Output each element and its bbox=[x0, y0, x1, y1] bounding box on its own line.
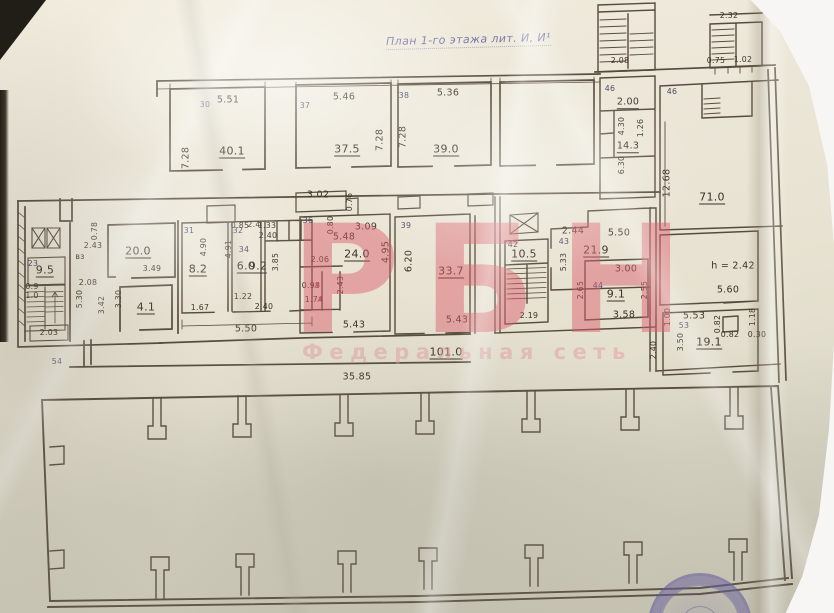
dimension-label: 3.30 bbox=[115, 290, 123, 309]
dimension-label: 7.28 bbox=[181, 147, 191, 169]
dimension-label: 2.00 bbox=[617, 97, 639, 109]
dimension-label: 54 bbox=[52, 358, 63, 366]
dimension-label: 14.3 bbox=[617, 141, 639, 153]
watermark-text: РБН bbox=[290, 206, 706, 356]
dimension-label: 2.03 bbox=[40, 329, 59, 337]
dimension-label: 4.91 bbox=[225, 240, 233, 259]
dimension-label: 39.0 bbox=[433, 144, 459, 157]
round-stamp-inner-ring bbox=[677, 602, 722, 613]
dimension-label: 5.46 bbox=[333, 92, 355, 102]
dimension-label: 2.40 bbox=[259, 232, 278, 240]
dimension-label: 20.0 bbox=[125, 246, 151, 259]
dimension-label: h = 2.42 bbox=[711, 261, 755, 271]
dimension-label: 9.2 bbox=[249, 261, 267, 274]
dimension-label: вз bbox=[75, 253, 84, 261]
dimension-label: 5.51 bbox=[217, 95, 239, 105]
dimension-label: 7.28 bbox=[398, 126, 408, 148]
dimension-label: 1.26 bbox=[637, 119, 645, 138]
dimension-label: 1.22 bbox=[234, 293, 253, 301]
dimension-label: 0.78 bbox=[91, 222, 99, 241]
dimension-label: 40.1 bbox=[219, 146, 245, 159]
dimension-label: 7.28 bbox=[375, 129, 385, 151]
dimension-label: 8.2 bbox=[189, 264, 207, 277]
dimension-label: 2.08 bbox=[79, 279, 98, 287]
photo-dark-edge bbox=[0, 90, 9, 342]
dimension-label: 31 bbox=[184, 227, 195, 235]
dimension-label: 0.30 bbox=[748, 331, 767, 339]
dimension-label: 37.5 bbox=[334, 144, 360, 157]
dimension-label: 0.82 bbox=[721, 331, 740, 339]
dimension-label: 5.36 bbox=[437, 88, 459, 98]
dimension-label: 2.08 bbox=[611, 57, 630, 65]
dimension-label: 46 bbox=[605, 85, 616, 93]
dimension-label: 1.67 bbox=[191, 304, 210, 312]
dimension-label: 5.60 bbox=[717, 285, 739, 295]
dimension-label: 34 bbox=[239, 246, 250, 254]
dimension-label: 30 bbox=[200, 101, 211, 109]
dimension-label: 3.49 bbox=[143, 265, 162, 273]
dimension-label: 0.9 bbox=[25, 283, 38, 291]
dimension-label: 4.30 bbox=[618, 117, 626, 136]
dimension-label: 9.5 bbox=[36, 265, 54, 278]
dimension-label: 1.18 bbox=[749, 308, 757, 327]
dimension-label: 6.30 bbox=[618, 156, 626, 175]
dimension-label: 1.33 bbox=[258, 222, 277, 230]
dimension-label: 46 bbox=[667, 88, 678, 96]
dimension-label: 5.50 bbox=[235, 324, 257, 334]
dimension-label: 3.85 bbox=[272, 253, 280, 272]
watermark-subtitle: Федеральная сеть bbox=[302, 340, 632, 364]
dimension-label: 4.90 bbox=[200, 238, 208, 257]
dimension-label: 3.42 bbox=[98, 296, 106, 315]
dimension-label: 5.30 bbox=[76, 290, 84, 309]
dimension-label: 37 bbox=[300, 102, 311, 110]
dimension-label: 2.32 bbox=[720, 12, 739, 20]
floorplan-photo: 305.517.2840.1375.467.2837.5385.367.2839… bbox=[0, 0, 834, 613]
dimension-label: 1.02 bbox=[734, 56, 753, 64]
dimension-label: 2.40 bbox=[255, 303, 274, 311]
dimension-label: 38 bbox=[399, 92, 410, 100]
dimension-label: 35.85 bbox=[343, 372, 372, 382]
dimension-label: 0.75 bbox=[707, 57, 726, 65]
dimension-label: 4.1 bbox=[137, 302, 155, 315]
dimension-label: 2.43 bbox=[84, 242, 103, 250]
dimension-label: 1.0 bbox=[25, 292, 38, 300]
